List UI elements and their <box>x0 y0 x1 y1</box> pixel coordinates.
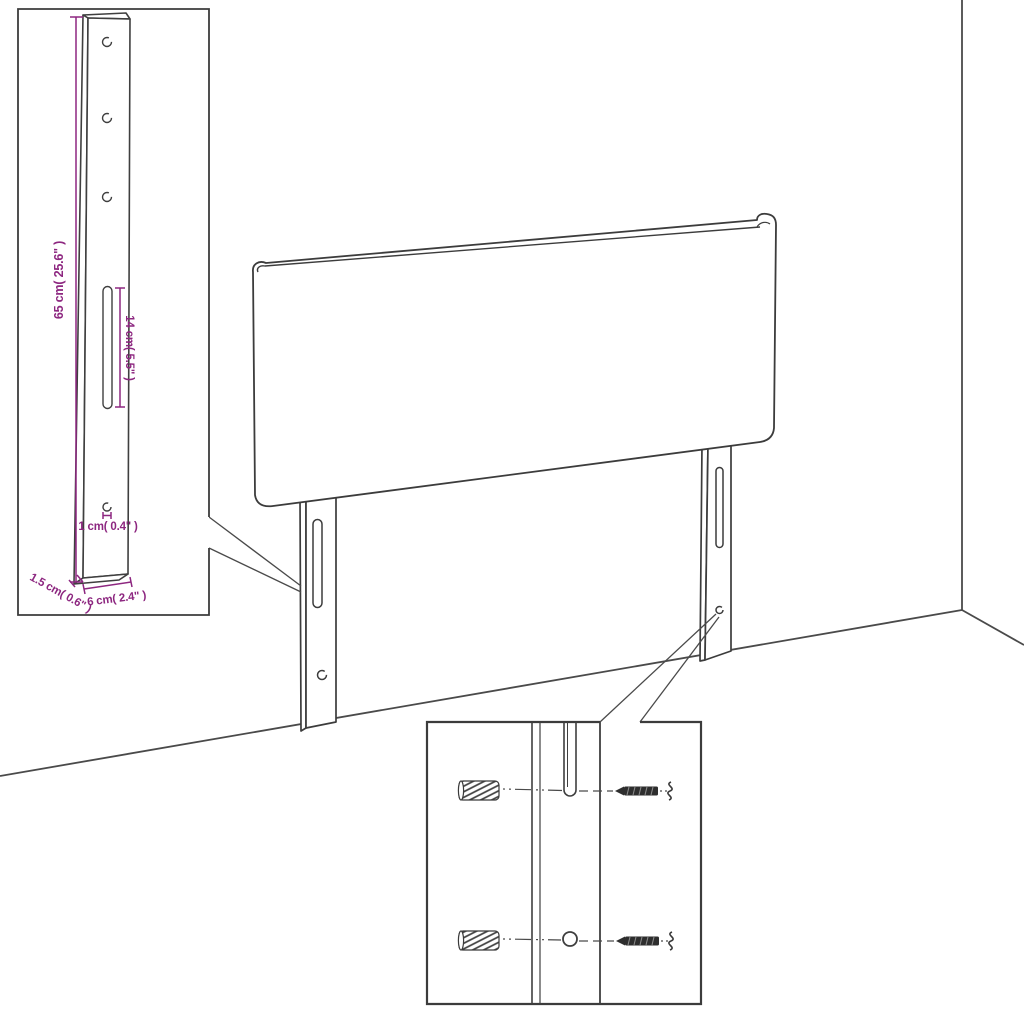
floor-wall-line-right <box>962 610 1024 645</box>
wall-plug-collar <box>458 781 463 800</box>
bracket-slot <box>103 287 112 409</box>
bracket-small-hole <box>103 503 111 511</box>
headboard-panel <box>253 214 776 507</box>
right-leg-hole <box>716 607 723 614</box>
bracket-hole-2 <box>103 114 112 123</box>
mounting-detail-inset <box>427 722 701 1004</box>
right-leg-slot <box>716 468 723 548</box>
inset-leg-hole <box>563 932 577 946</box>
dim-height-label: 65 cm( 25.6" ) <box>52 241 66 319</box>
left-leg-slot <box>313 520 322 608</box>
wall-plug-collar <box>458 931 463 950</box>
diagram-page: 65 cm( 25.6" ) 14 cm( 5.5" ) 1 cm( 0.4" … <box>0 0 1024 1024</box>
right-mounting-leg <box>700 440 731 661</box>
dim-slot-label: 14 cm( 5.5" ) <box>123 315 135 381</box>
headboard-outline <box>253 214 776 507</box>
bracket-hole-3 <box>103 193 112 202</box>
leg-bracket <box>74 13 130 584</box>
left-leg-side-face <box>300 494 306 731</box>
leg-detail-inset: 65 cm( 25.6" ) 14 cm( 5.5" ) 1 cm( 0.4" … <box>18 9 209 615</box>
left-leg-hole <box>318 671 327 680</box>
assembly-diagram: 65 cm( 25.6" ) 14 cm( 5.5" ) 1 cm( 0.4" … <box>0 0 1024 1024</box>
left-mounting-leg <box>300 491 336 731</box>
leg-inset-callout-lines <box>209 517 301 592</box>
bracket-hole-1 <box>103 38 112 47</box>
dim-hole-label: 1 cm( 0.4" ) <box>78 521 138 533</box>
